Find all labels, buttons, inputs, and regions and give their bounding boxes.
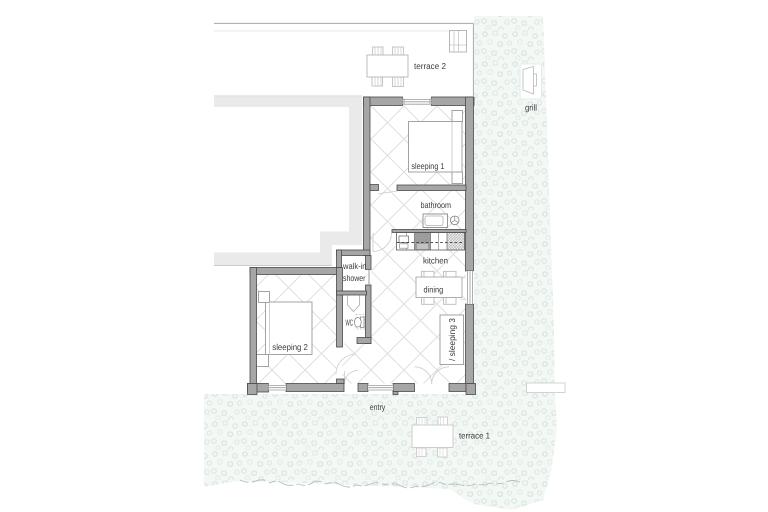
svg-text:sleeping 2: sleeping 2 xyxy=(272,342,308,352)
svg-text:entry: entry xyxy=(370,402,386,412)
svg-text:dining: dining xyxy=(424,285,444,295)
svg-text:/ sleeping 3: / sleeping 3 xyxy=(447,318,457,361)
svg-text:sleeping 1: sleeping 1 xyxy=(411,161,444,171)
svg-text:shower: shower xyxy=(343,273,366,283)
svg-text:terrace 2: terrace 2 xyxy=(414,61,446,71)
svg-text:terrace 1: terrace 1 xyxy=(459,431,490,441)
svg-text:bathroom: bathroom xyxy=(421,200,452,210)
svg-text:WC: WC xyxy=(346,318,354,328)
svg-text:grill: grill xyxy=(525,103,537,113)
svg-text:walk-in: walk-in xyxy=(342,261,367,271)
svg-text:kitchen: kitchen xyxy=(423,256,448,266)
